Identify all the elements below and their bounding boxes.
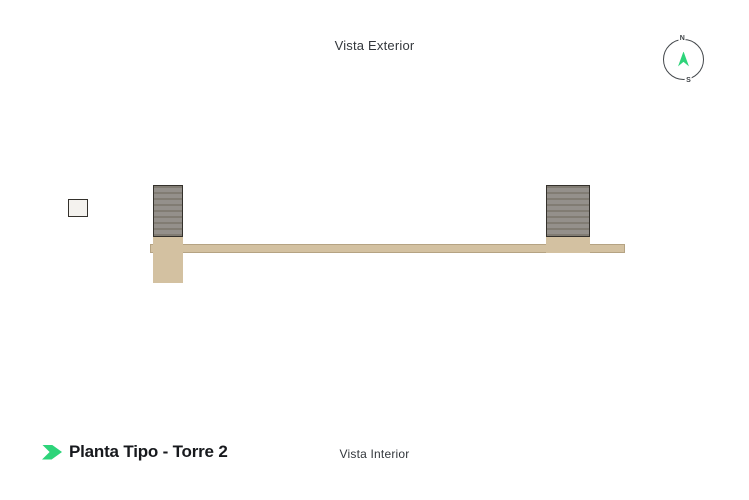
compass-south-label: S	[685, 77, 692, 84]
interior-view-label: Vista Interior	[0, 447, 749, 461]
left-stair-core	[153, 185, 183, 237]
compass-north-label: N	[679, 35, 686, 42]
floor-plan	[57, 185, 685, 312]
stair-landing	[68, 199, 88, 217]
page: Vista Exterior N S Planta Tipo - Torre 2…	[0, 0, 749, 500]
exterior-view-label: Vista Exterior	[0, 38, 749, 53]
compass: N S	[663, 39, 704, 80]
right-stair-core	[546, 185, 590, 237]
right-core-lobby	[546, 237, 590, 253]
left-core-lobby	[153, 237, 183, 283]
